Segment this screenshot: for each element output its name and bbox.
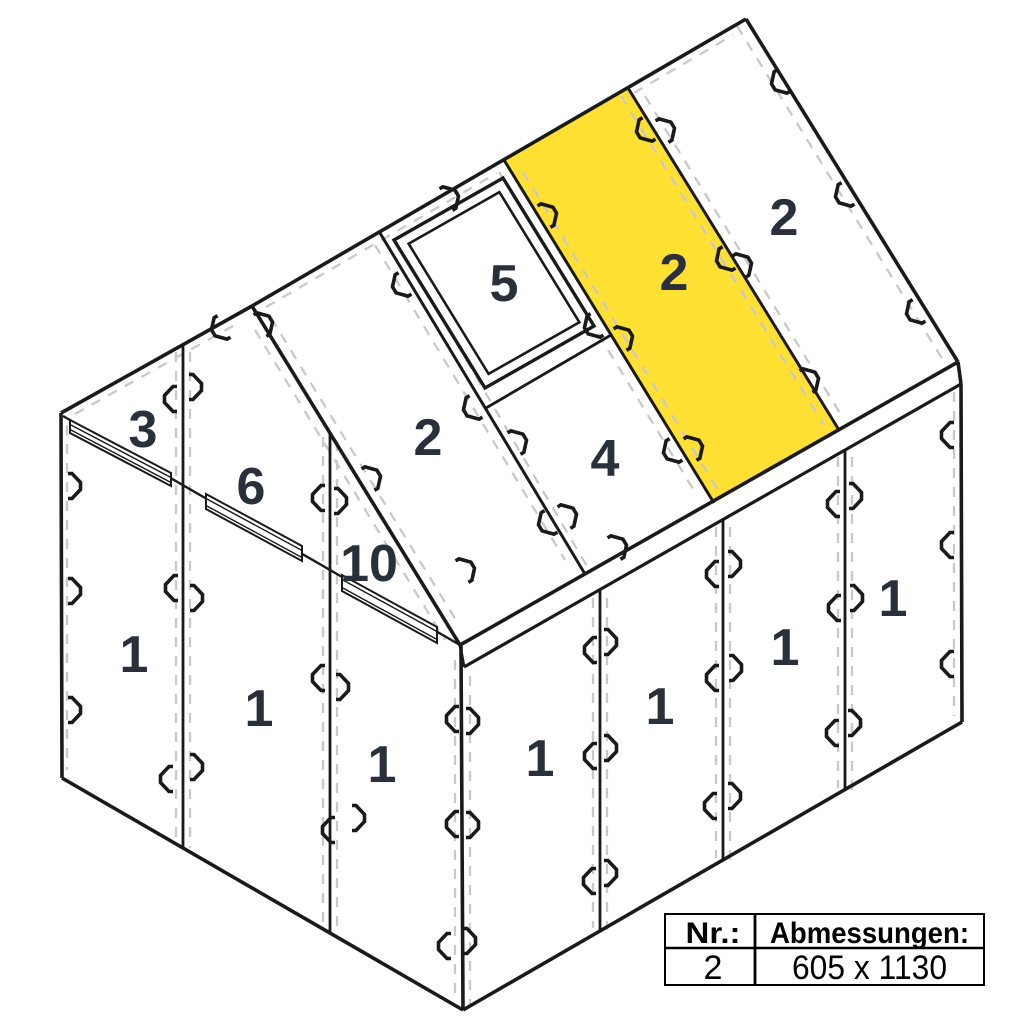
svg-text:2: 2 bbox=[770, 189, 799, 247]
svg-text:3: 3 bbox=[129, 401, 158, 459]
svg-text:1: 1 bbox=[368, 736, 397, 794]
svg-text:1: 1 bbox=[526, 730, 555, 788]
svg-text:4: 4 bbox=[591, 430, 620, 488]
svg-text:2: 2 bbox=[414, 409, 443, 467]
svg-text:Abmessungen:: Abmessungen: bbox=[770, 917, 969, 950]
svg-text:1: 1 bbox=[771, 619, 800, 677]
svg-text:1: 1 bbox=[120, 626, 149, 684]
svg-text:Nr.:: Nr.: bbox=[686, 917, 741, 950]
svg-text:1: 1 bbox=[245, 680, 274, 738]
svg-text:6: 6 bbox=[237, 458, 266, 516]
svg-text:2: 2 bbox=[704, 949, 723, 987]
svg-text:1: 1 bbox=[879, 570, 908, 628]
svg-text:605 x 1130: 605 x 1130 bbox=[792, 949, 947, 987]
svg-text:1: 1 bbox=[646, 678, 675, 736]
svg-text:10: 10 bbox=[340, 535, 398, 593]
svg-text:2: 2 bbox=[660, 244, 689, 302]
svg-text:5: 5 bbox=[490, 255, 519, 313]
